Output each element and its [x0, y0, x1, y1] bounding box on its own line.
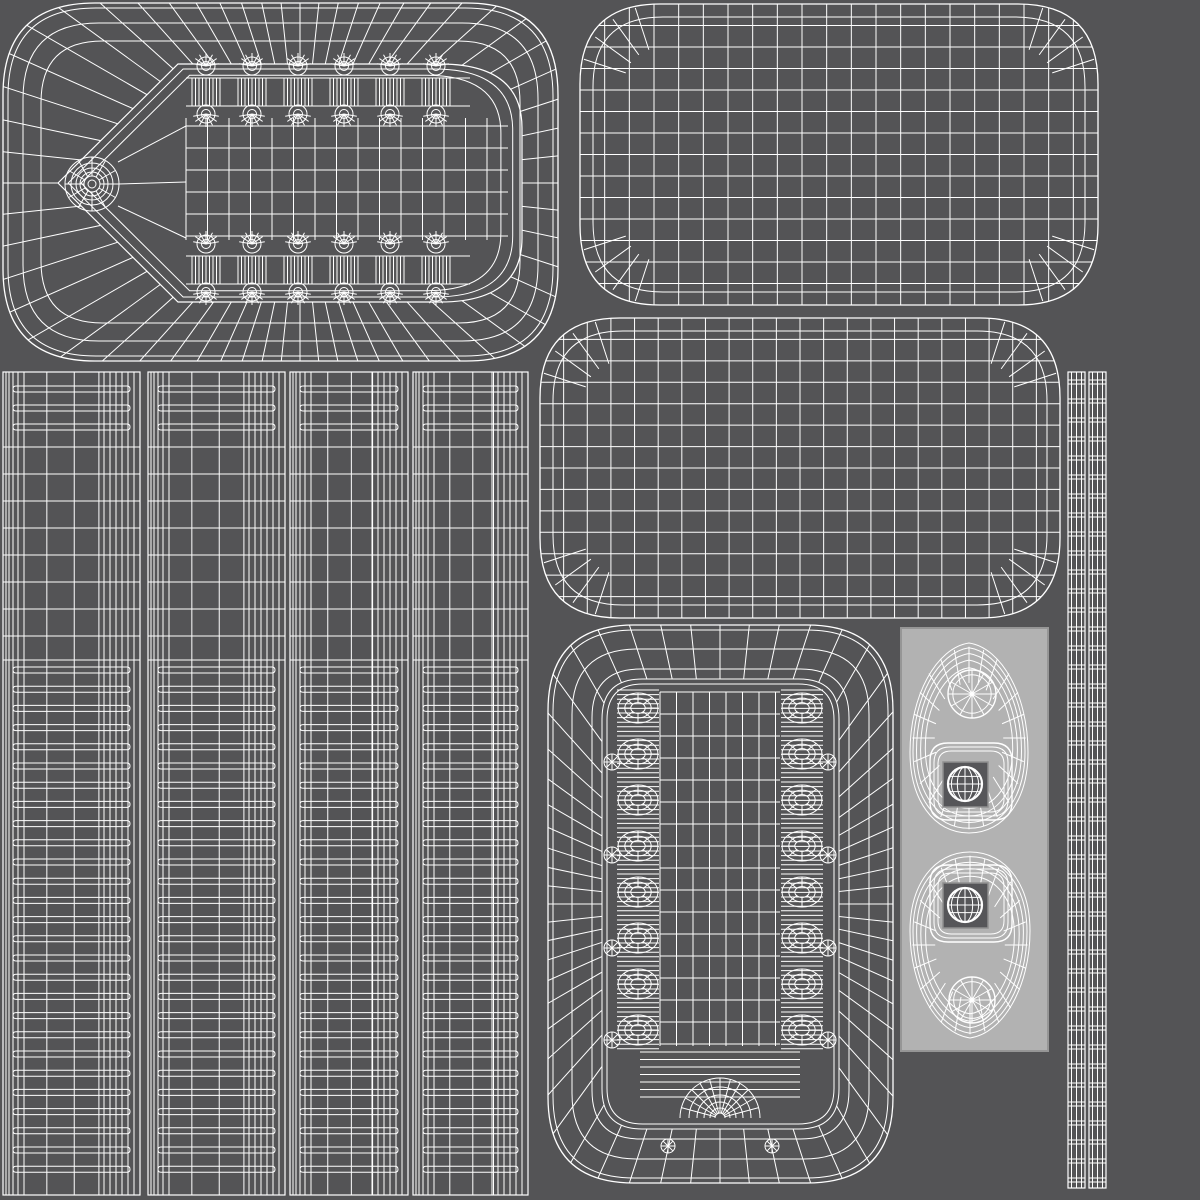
- wireframe-canvas: [0, 0, 1200, 1200]
- uv-texture-sheet: [0, 0, 1200, 1200]
- island-faceplate-panel: [901, 628, 1048, 1051]
